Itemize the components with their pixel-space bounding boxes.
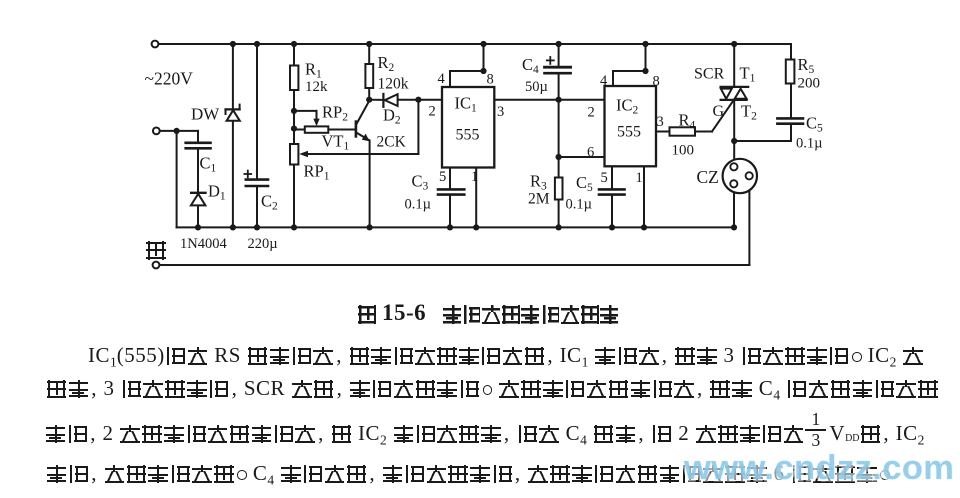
svg-text:DW: DW — [191, 105, 220, 124]
svg-text:2CK: 2CK — [377, 134, 407, 151]
svg-text:C4: C4 — [522, 55, 539, 76]
svg-text:4: 4 — [438, 71, 446, 87]
svg-text:100: 100 — [672, 143, 695, 159]
svg-text:0.1µ: 0.1µ — [405, 197, 431, 213]
svg-text:T2: T2 — [741, 102, 757, 123]
svg-text:~220V: ~220V — [145, 69, 194, 89]
svg-text:R4: R4 — [679, 111, 696, 132]
svg-text:0.1µ: 0.1µ — [566, 197, 592, 213]
svg-text:2M: 2M — [528, 191, 550, 208]
svg-text:D2: D2 — [383, 106, 401, 127]
svg-text:RP1: RP1 — [304, 162, 330, 183]
svg-text:3: 3 — [497, 104, 504, 120]
svg-text:0.1µ: 0.1µ — [796, 136, 822, 152]
svg-text:G: G — [713, 103, 725, 120]
svg-text:2: 2 — [429, 104, 436, 120]
svg-text:C5: C5 — [806, 114, 823, 135]
svg-text:1: 1 — [636, 170, 643, 186]
svg-text:R1: R1 — [305, 60, 322, 81]
svg-text:555: 555 — [617, 124, 641, 141]
svg-text:SCR: SCR — [694, 66, 725, 83]
svg-text:D1: D1 — [208, 182, 226, 203]
svg-text:4: 4 — [600, 73, 608, 89]
svg-text:120k: 120k — [378, 76, 409, 93]
svg-text:C1: C1 — [200, 154, 217, 175]
svg-text:T1: T1 — [740, 64, 756, 85]
svg-text:RP2: RP2 — [322, 103, 348, 124]
svg-text:8: 8 — [653, 74, 660, 90]
svg-text:R2: R2 — [378, 53, 395, 74]
svg-text:5: 5 — [601, 170, 608, 186]
svg-text:R5: R5 — [798, 55, 815, 76]
svg-text:VT1: VT1 — [322, 132, 350, 153]
svg-text:1N4004: 1N4004 — [180, 236, 227, 252]
svg-text:12k: 12k — [305, 79, 328, 95]
svg-text:1: 1 — [471, 169, 478, 185]
svg-text:50µ: 50µ — [525, 79, 548, 95]
svg-text:200: 200 — [798, 76, 821, 92]
svg-text:CZ: CZ — [697, 167, 719, 187]
svg-text:C5: C5 — [576, 173, 593, 194]
svg-text:220µ: 220µ — [248, 236, 278, 252]
svg-text:R3: R3 — [530, 172, 547, 193]
svg-text:5: 5 — [439, 169, 446, 185]
svg-text:555: 555 — [456, 127, 480, 144]
svg-text:3: 3 — [657, 114, 664, 130]
svg-text:6: 6 — [587, 145, 594, 161]
svg-text:C2: C2 — [261, 192, 278, 213]
svg-text:C3: C3 — [412, 172, 429, 193]
svg-text:8: 8 — [487, 72, 494, 88]
svg-text:2: 2 — [588, 105, 595, 121]
